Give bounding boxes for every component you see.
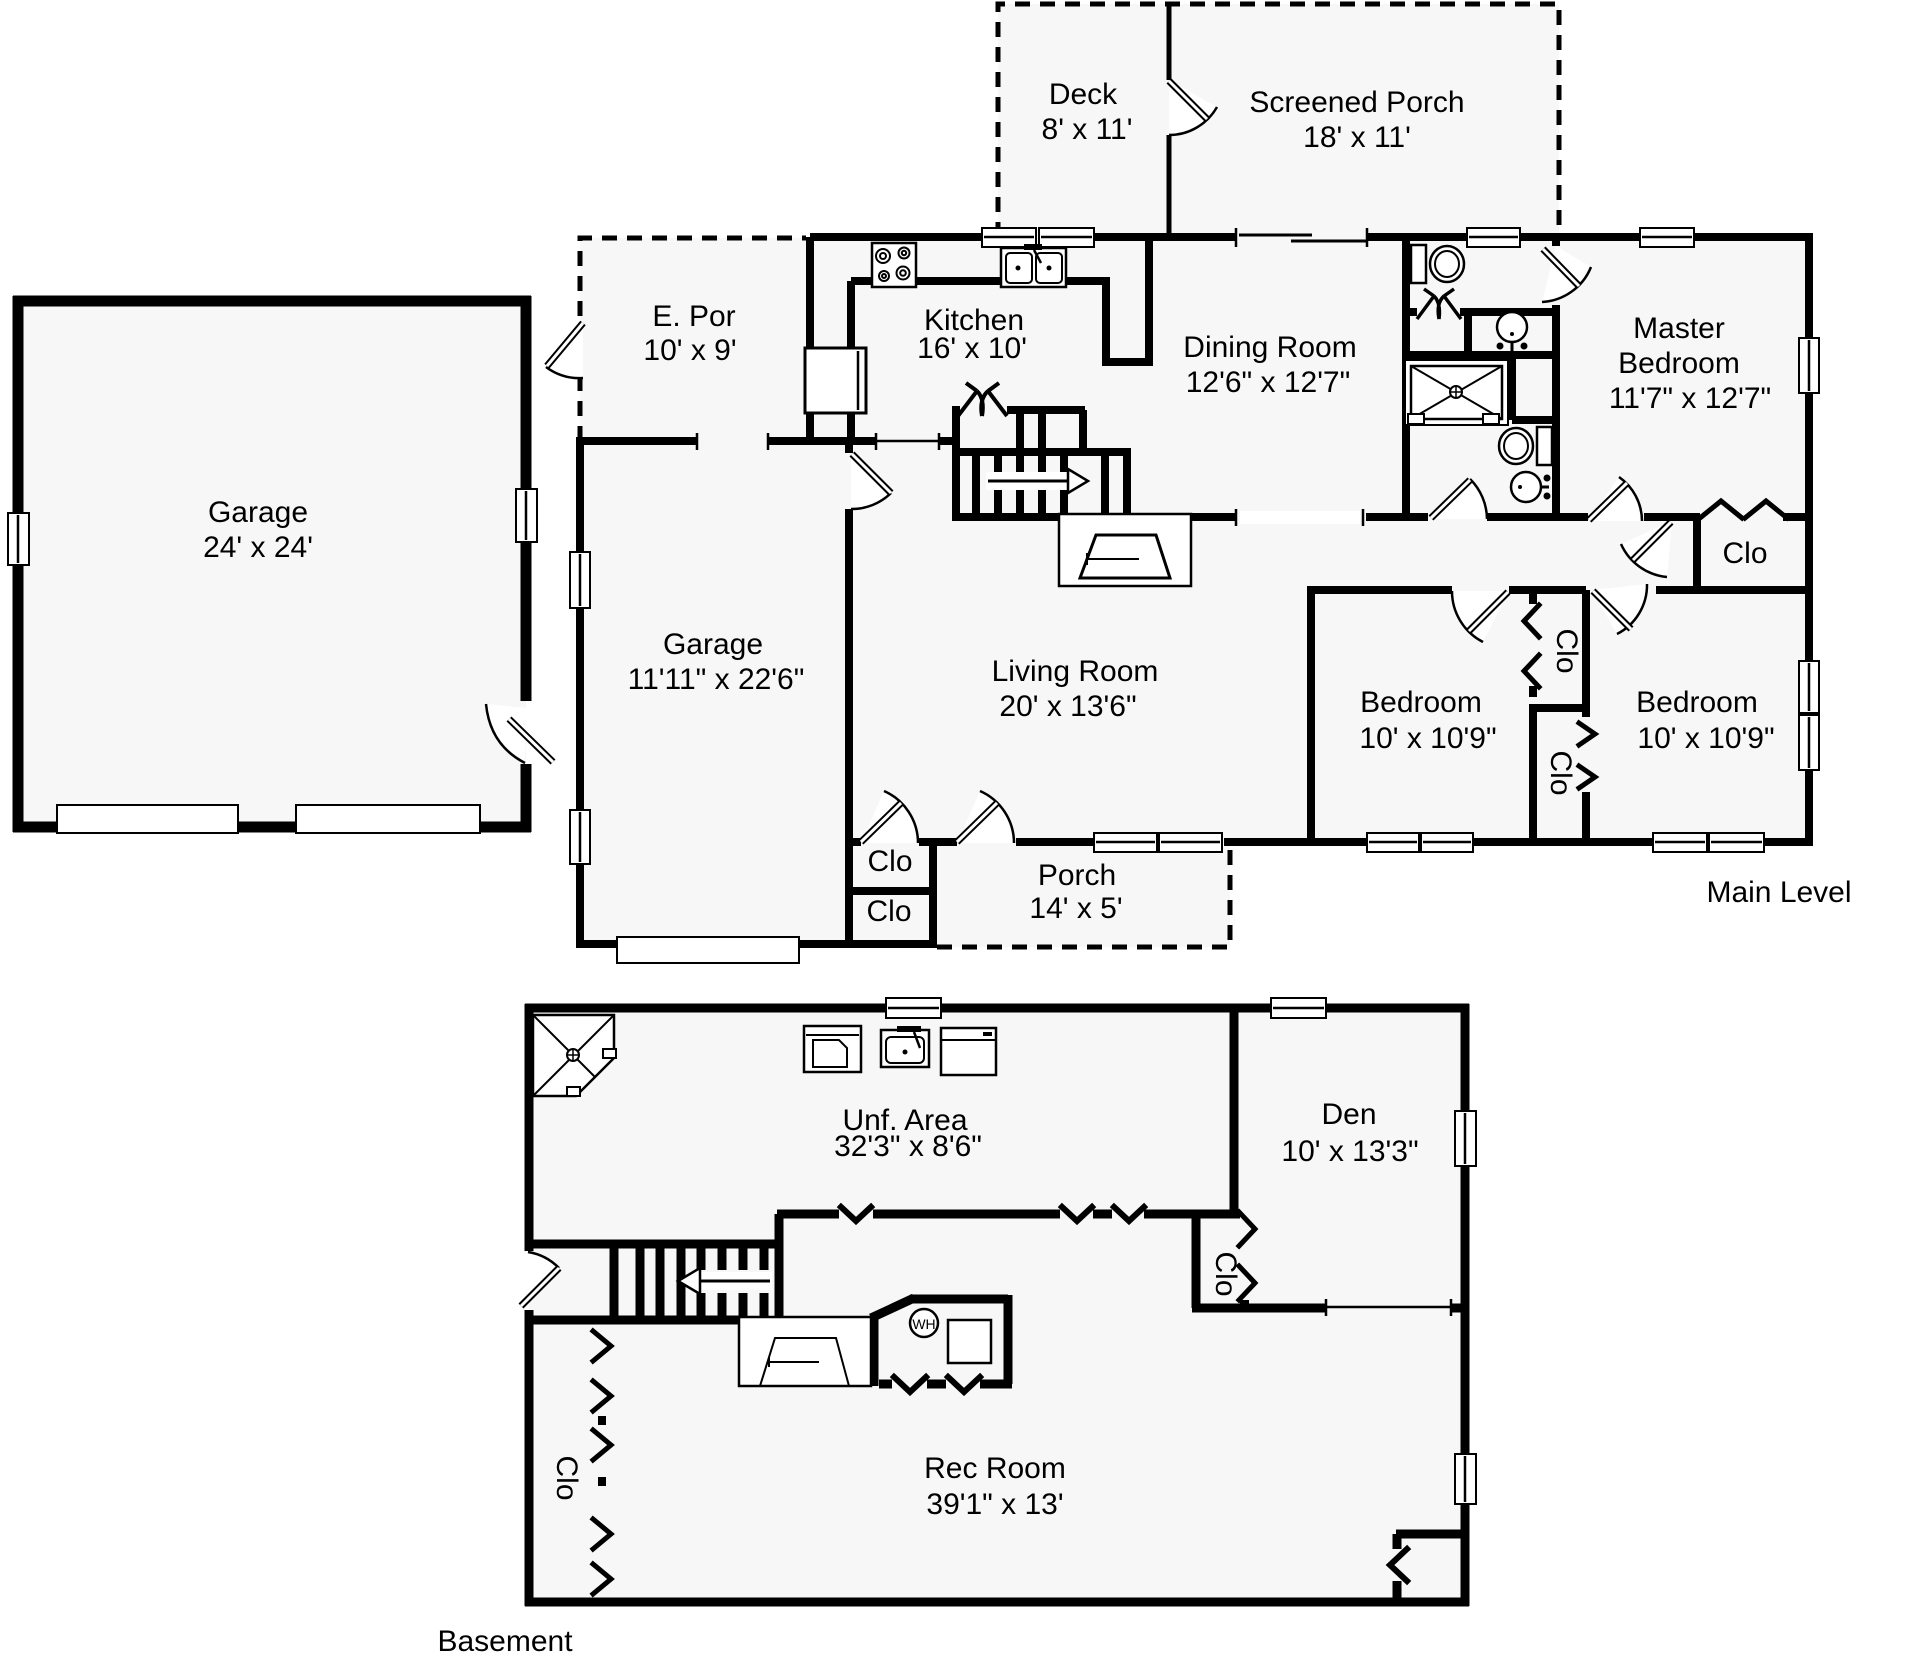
svg-text:39'1" x 13': 39'1" x 13' xyxy=(926,1488,1063,1521)
svg-text:Bedroom: Bedroom xyxy=(1618,347,1740,380)
svg-text:24' x 24': 24' x 24' xyxy=(203,531,313,564)
svg-text:Clo: Clo xyxy=(550,1455,583,1500)
svg-text:Master: Master xyxy=(1633,312,1725,345)
svg-text:14' x 5': 14' x 5' xyxy=(1029,892,1122,925)
svg-text:10' x 10'9": 10' x 10'9" xyxy=(1359,722,1496,755)
svg-text:Dining Room: Dining Room xyxy=(1183,331,1356,364)
svg-text:Clo: Clo xyxy=(1550,628,1583,673)
svg-text:10' x 9': 10' x 9' xyxy=(643,334,736,367)
svg-text:Living Room: Living Room xyxy=(992,655,1159,688)
svg-text:16' x 10': 16' x 10' xyxy=(917,332,1027,365)
svg-text:Rec Room: Rec Room xyxy=(924,1452,1066,1485)
svg-text:10' x 10'9": 10' x 10'9" xyxy=(1637,722,1774,755)
svg-text:Bedroom: Bedroom xyxy=(1636,686,1758,719)
svg-text:Clo: Clo xyxy=(1209,1251,1242,1296)
svg-text:11'7" x 12'7": 11'7" x 12'7" xyxy=(1609,382,1771,415)
svg-text:Screened Porch: Screened Porch xyxy=(1249,86,1464,119)
svg-text:Porch: Porch xyxy=(1038,859,1116,892)
svg-text:10' x 13'3": 10' x 13'3" xyxy=(1281,1135,1418,1168)
svg-text:12'6" x 12'7": 12'6" x 12'7" xyxy=(1186,366,1351,399)
svg-text:Garage: Garage xyxy=(208,496,308,529)
svg-text:8' x 11': 8' x 11' xyxy=(1042,113,1133,146)
svg-text:WH: WH xyxy=(912,1316,935,1332)
svg-text:Bedroom: Bedroom xyxy=(1360,686,1482,719)
svg-text:18' x 11': 18' x 11' xyxy=(1303,121,1411,154)
svg-text:Clo: Clo xyxy=(867,845,912,878)
svg-text:Garage: Garage xyxy=(663,628,763,661)
svg-text:11'11" x 22'6": 11'11" x 22'6" xyxy=(628,663,805,696)
svg-text:Clo: Clo xyxy=(1544,750,1577,795)
svg-text:Main Level: Main Level xyxy=(1706,876,1851,909)
svg-text:Clo: Clo xyxy=(866,895,911,928)
svg-text:Basement: Basement xyxy=(437,1625,573,1658)
svg-text:32'3" x 8'6": 32'3" x 8'6" xyxy=(834,1130,982,1163)
svg-text:E. Por: E. Por xyxy=(652,300,735,333)
svg-text:Den: Den xyxy=(1321,1098,1376,1131)
svg-text:Deck: Deck xyxy=(1049,78,1118,111)
svg-text:20' x 13'6": 20' x 13'6" xyxy=(999,690,1136,723)
svg-text:Clo: Clo xyxy=(1722,537,1767,570)
